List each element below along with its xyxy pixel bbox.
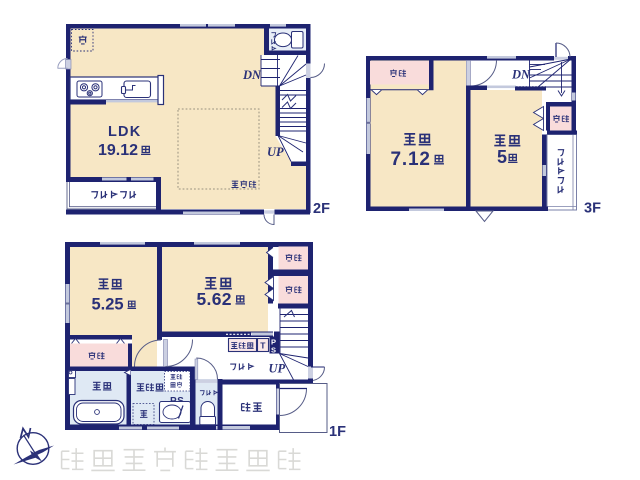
- svg-text:2F: 2F: [313, 201, 330, 217]
- svg-text:7.12: 7.12: [391, 149, 431, 170]
- svg-text:5: 5: [497, 147, 507, 167]
- svg-text:5.62: 5.62: [197, 289, 232, 309]
- svg-text:S: S: [271, 346, 276, 355]
- svg-text:T: T: [260, 341, 266, 351]
- svg-text:LDK: LDK: [108, 124, 141, 140]
- svg-text:1F: 1F: [329, 424, 346, 440]
- svg-text:UP: UP: [267, 145, 284, 159]
- svg-text:DN: DN: [511, 68, 531, 82]
- svg-text:UP: UP: [269, 362, 286, 376]
- svg-text:5.25: 5.25: [92, 296, 124, 314]
- svg-text:3F: 3F: [584, 201, 601, 217]
- svg-text:DN: DN: [242, 68, 262, 82]
- svg-text:19.12: 19.12: [98, 142, 138, 159]
